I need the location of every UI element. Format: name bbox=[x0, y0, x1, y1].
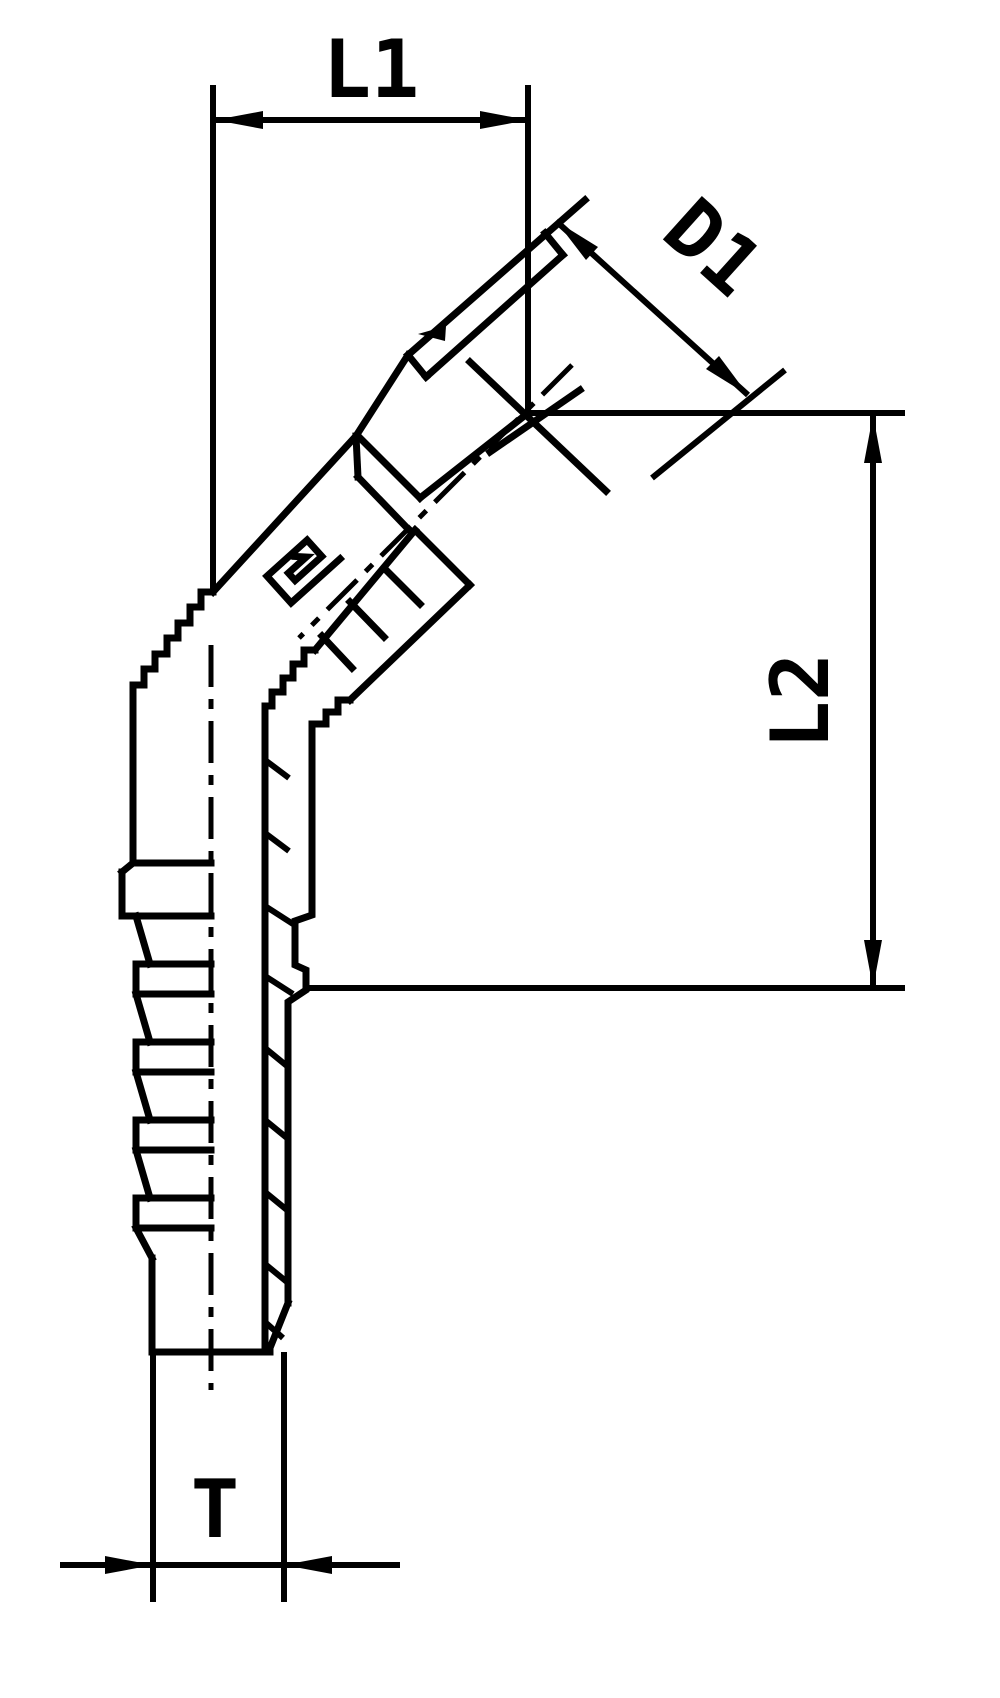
neck-cone-line bbox=[356, 355, 408, 436]
dimension-l2-label: L2 bbox=[754, 653, 847, 749]
arm-barb-outer bbox=[350, 585, 470, 700]
flange-band-cap-right bbox=[545, 233, 563, 255]
arm-barb-tick-2 bbox=[350, 602, 384, 637]
arm-barb-tick-3 bbox=[322, 636, 352, 668]
spiral-mark bbox=[267, 532, 340, 603]
hatch-line bbox=[265, 760, 289, 778]
barb-taper bbox=[136, 1072, 150, 1120]
shank-right-wall bbox=[288, 724, 312, 1303]
fitting-outline bbox=[122, 200, 606, 1352]
arm-centerline bbox=[299, 365, 572, 638]
barb-taper bbox=[136, 916, 150, 964]
bend-right-steps bbox=[312, 700, 350, 724]
neck-lower-line bbox=[420, 413, 528, 498]
l1-arrow-right bbox=[480, 111, 528, 129]
dimension-l1 bbox=[213, 85, 528, 592]
bend-outer-steps bbox=[133, 592, 213, 700]
dimension-d1-label: D1 bbox=[646, 181, 780, 315]
hatch-line bbox=[265, 833, 289, 851]
l2-arrow-top bbox=[864, 415, 882, 463]
flange-band-lower bbox=[426, 255, 563, 377]
l2-arrow-bottom bbox=[864, 940, 882, 988]
bend-inner-steps bbox=[265, 650, 315, 706]
flange-face-line bbox=[470, 362, 606, 491]
barb-taper bbox=[136, 1228, 152, 1258]
collar-cap-edge bbox=[356, 436, 358, 477]
dimension-l1-label: L1 bbox=[323, 23, 419, 116]
spiral-mark-path bbox=[267, 532, 340, 603]
arm-barb-cap bbox=[415, 530, 470, 585]
dimension-t-label: T bbox=[191, 1463, 239, 1556]
fitting-drawing: L1 D1 L2 T bbox=[0, 0, 1000, 1698]
t-arrow-left bbox=[105, 1556, 153, 1574]
hatch-line bbox=[265, 976, 293, 994]
bend-outer-line bbox=[213, 436, 356, 592]
hatch-line bbox=[265, 906, 293, 924]
arm-barb-tick-1 bbox=[384, 568, 420, 604]
barb-taper bbox=[136, 1150, 150, 1198]
flange-lower-od-line bbox=[490, 390, 580, 452]
barb-taper bbox=[136, 994, 150, 1042]
arm-barb-inner bbox=[315, 530, 415, 650]
flange-band-cap-left bbox=[408, 355, 426, 377]
drawing-page: L1 D1 L2 T bbox=[0, 0, 1000, 1698]
l1-arrow-left bbox=[215, 111, 263, 129]
d1-ext-lower bbox=[652, 370, 785, 478]
t-arrow-right bbox=[284, 1556, 332, 1574]
